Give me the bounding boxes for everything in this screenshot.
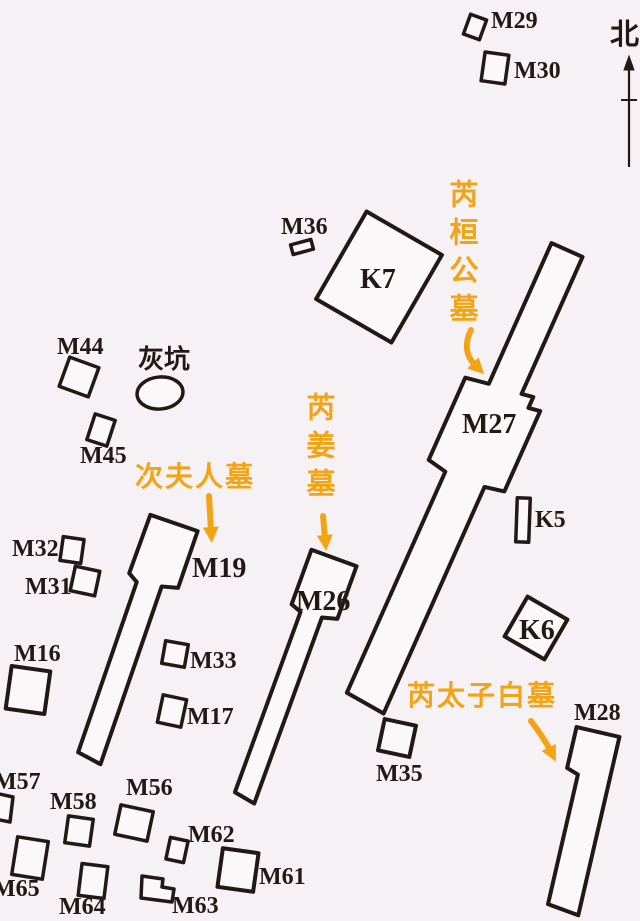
tomb-m61-outline	[217, 848, 258, 892]
label-m65: M65	[0, 877, 40, 901]
tomb-m31-outline	[70, 566, 100, 596]
pit-k5-outline	[516, 498, 531, 542]
tomb-m63-outline	[141, 876, 174, 902]
tomb-m44-outline	[59, 357, 99, 397]
tomb-m56-outline	[115, 805, 154, 841]
label-m45: M45	[80, 444, 127, 468]
label-m35: M35	[376, 762, 423, 786]
site-map: 北 M29 M30 M36 K7 M44 灰坑 M45 M32 M31 M16 …	[0, 0, 640, 921]
label-m19: M19	[192, 555, 246, 583]
label-m62: M62	[188, 823, 235, 847]
annotation-rui-tai-zi-bai-mu: 芮太子白墓	[407, 682, 557, 710]
tomb-m58-outline	[65, 816, 94, 846]
tomb-m17-outline	[157, 695, 186, 727]
tomb-m35-outline	[378, 719, 416, 757]
label-m28: M28	[574, 701, 621, 725]
label-m44: M44	[57, 335, 104, 359]
label-m30: M30	[514, 59, 561, 83]
label-m27: M27	[462, 411, 516, 439]
label-m26: M26	[296, 588, 350, 616]
tomb-m28-outline	[535, 727, 619, 915]
annotation-rui-huan-gong-mu: 芮桓公墓	[446, 179, 475, 331]
annotation-ci-fu-ren-mu: 次夫人墓	[135, 463, 255, 491]
label-m64: M64	[59, 895, 106, 919]
label-m29: M29	[491, 9, 538, 33]
tomb-m65-outline	[12, 837, 49, 879]
tomb-m33-outline	[162, 641, 189, 668]
tomb-m62-outline	[166, 837, 188, 862]
ash-pit-outline	[136, 375, 185, 411]
north-label: 北	[610, 21, 639, 50]
label-k7: K7	[360, 266, 396, 294]
tomb-m45-outline	[87, 414, 115, 446]
label-ash-pit: 灰坑	[138, 347, 190, 373]
label-m32: M32	[12, 537, 59, 561]
label-k6: K6	[519, 617, 555, 645]
label-m61: M61	[259, 865, 306, 889]
label-k5: K5	[535, 508, 566, 532]
label-m33: M33	[190, 649, 237, 673]
label-m63: M63	[172, 894, 219, 918]
arrow-rui-huan-gong	[467, 330, 475, 365]
arrow-rui-jiang	[323, 516, 325, 538]
label-m16: M16	[14, 642, 61, 666]
tomb-m36-outline	[291, 239, 314, 254]
label-m17: M17	[187, 705, 234, 729]
tomb-m16-outline	[6, 666, 51, 714]
label-m56: M56	[126, 776, 173, 800]
tomb-m57-outline	[0, 793, 13, 822]
label-m36: M36	[281, 215, 328, 239]
tomb-m30-outline	[481, 52, 509, 84]
label-m31: M31	[25, 575, 72, 599]
arrow-rui-tai-zi-bai	[531, 721, 550, 750]
label-m57: M57	[0, 770, 41, 794]
tomb-m32-outline	[60, 537, 84, 564]
annotation-rui-jiang-mu: 芮姜墓	[303, 392, 332, 506]
arrow-ci-fu-ren	[209, 496, 211, 530]
north-arrow-head	[624, 56, 634, 70]
label-m58: M58	[50, 790, 97, 814]
tomb-m29-outline	[463, 14, 486, 40]
